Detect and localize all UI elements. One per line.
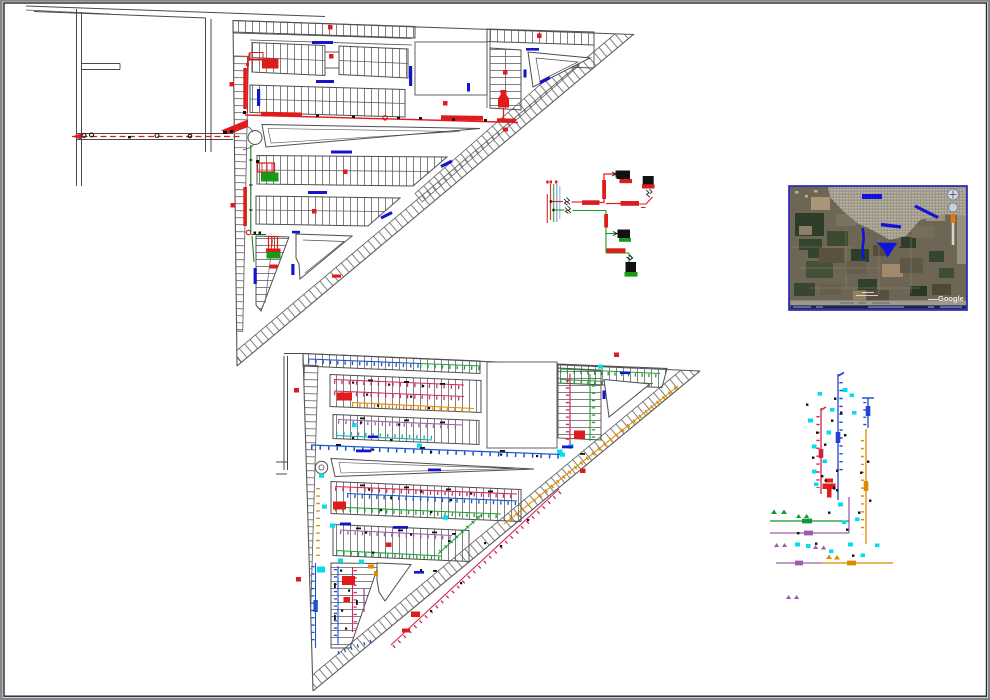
svg-text:Google: Google: [938, 294, 964, 303]
